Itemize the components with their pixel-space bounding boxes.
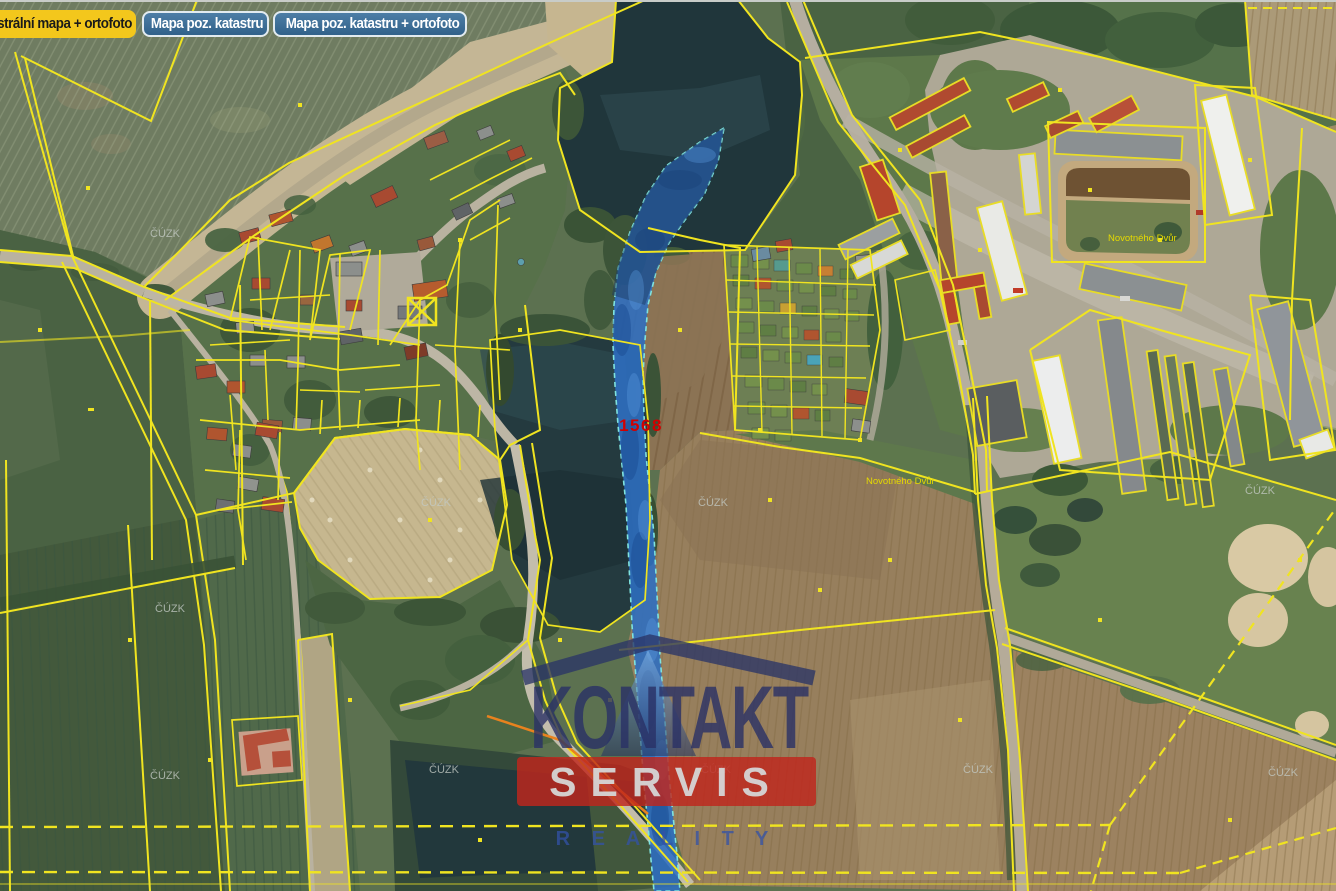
svg-text:Novotného Dvůr: Novotného Dvůr [1108, 233, 1177, 244]
svg-text:SERVIS: SERVIS [549, 759, 783, 805]
svg-text:ČÚZK: ČÚZK [963, 763, 994, 776]
svg-text:ČÚZK: ČÚZK [150, 769, 181, 782]
svg-text:KONTAKT: KONTAKT [530, 668, 809, 768]
svg-text:ČÚZK: ČÚZK [155, 602, 186, 615]
svg-text:ČÚZK: ČÚZK [421, 496, 452, 509]
svg-text:R E A L I T Y: R E A L I T Y [556, 828, 777, 850]
svg-text:ČÚZK: ČÚZK [150, 227, 181, 240]
svg-text:1568: 1568 [619, 416, 663, 435]
svg-text:ČÚZK: ČÚZK [1268, 766, 1299, 779]
svg-text:ČÚZK: ČÚZK [429, 763, 460, 776]
svg-text:ČÚZK: ČÚZK [698, 496, 729, 509]
svg-text:Novotného Dvůr: Novotného Dvůr [866, 476, 935, 487]
svg-text:ČÚZK: ČÚZK [1245, 484, 1276, 497]
